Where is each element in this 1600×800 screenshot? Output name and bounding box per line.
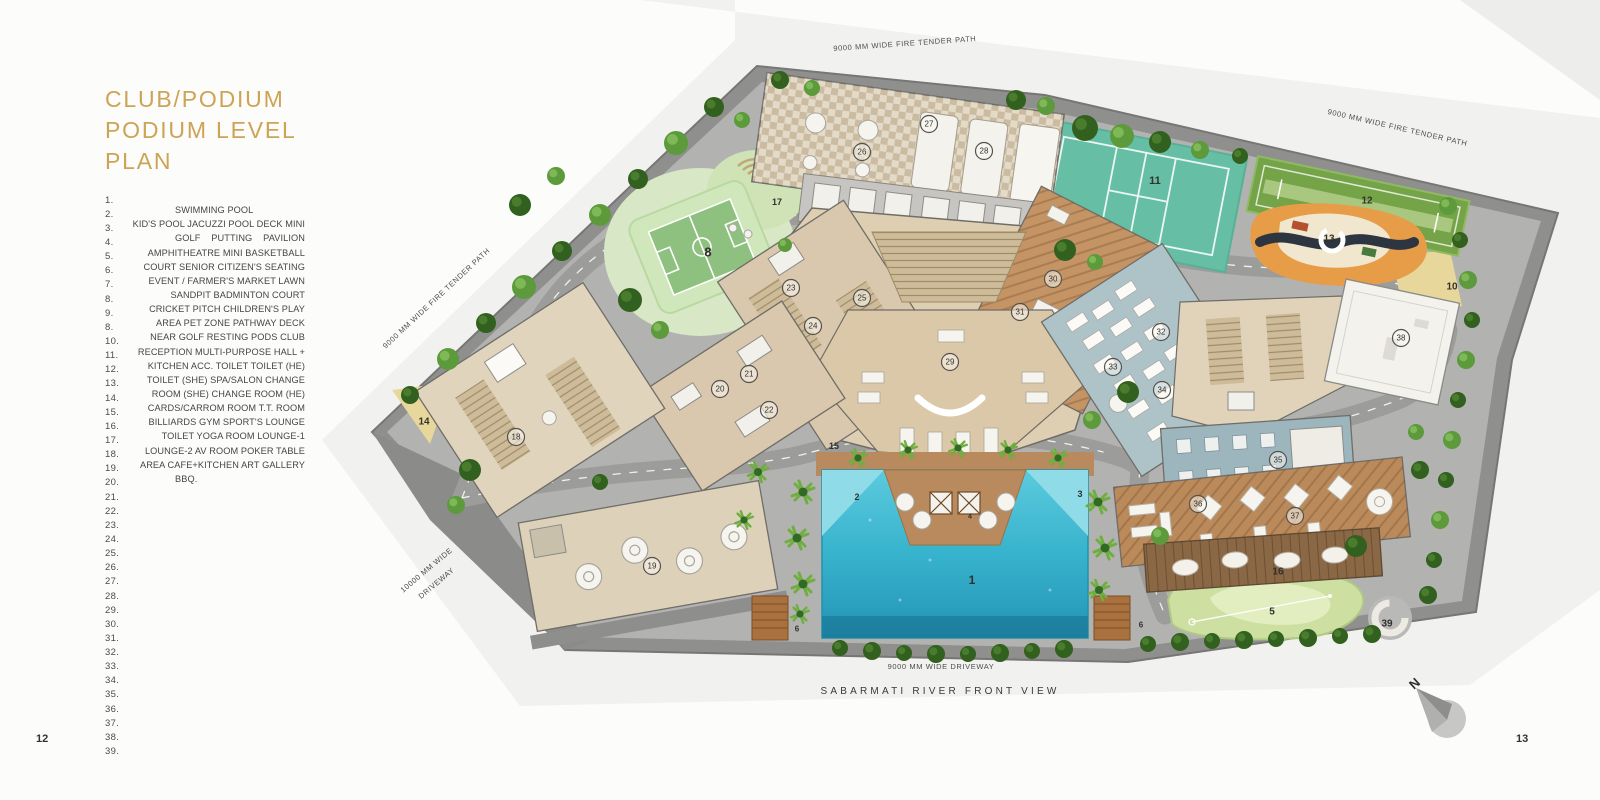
legend-text: AREA CAFE+KITCHEN ART GALLERY bbox=[140, 460, 305, 470]
legend-text: ROOM (SHE) CHANGE ROOM (HE) bbox=[152, 389, 305, 399]
legend-text: NEAR GOLF RESTING PODS CLUB bbox=[150, 332, 305, 342]
legend-number: 6. bbox=[105, 265, 144, 276]
marker-label: 14 bbox=[418, 417, 430, 428]
legend-number: 19. bbox=[105, 463, 140, 474]
legend-number: 16. bbox=[105, 421, 148, 432]
plan-marker-29: 29 bbox=[942, 354, 959, 371]
marker-label: 1 bbox=[969, 573, 976, 587]
plan-marker-20: 20 bbox=[712, 381, 729, 398]
plan-marker-17: 17 bbox=[772, 197, 782, 207]
legend-row: 30. bbox=[105, 617, 305, 631]
plan-marker-15: 15 bbox=[829, 441, 839, 451]
plan-marker-1: 1 bbox=[969, 573, 976, 587]
legend-number: 20. bbox=[105, 477, 175, 488]
plan-marker-32: 32 bbox=[1153, 324, 1170, 341]
plan-marker-2: 2 bbox=[854, 492, 859, 502]
marker-label: 29 bbox=[946, 358, 955, 367]
plan-marker-35: 35 bbox=[1270, 452, 1287, 469]
marker-label: 20 bbox=[716, 385, 725, 394]
legend: 1.2.SWIMMING POOL3.KID'S POOL JACUZZI PO… bbox=[105, 193, 305, 759]
plan-marker-12: 12 bbox=[1361, 196, 1373, 207]
marker-label: 12 bbox=[1361, 196, 1373, 207]
legend-number: 28. bbox=[105, 591, 175, 602]
plan-marker-14: 14 bbox=[418, 417, 430, 428]
legend-row: 39. bbox=[105, 744, 305, 758]
legend-text: AMPHITHEATRE MINI BASKETBALL bbox=[148, 248, 305, 258]
marker-label: 17 bbox=[772, 197, 782, 207]
marker-label: 13 bbox=[1323, 234, 1335, 245]
legend-row: 25. bbox=[105, 547, 305, 561]
brochure-page: N 9000 MM WIDE FIRE TENDER PATH 9000 MM … bbox=[0, 0, 1600, 800]
legend-text: CARDS/CARROM ROOM T.T. ROOM bbox=[148, 403, 305, 413]
pool-bridge-6-left bbox=[752, 596, 788, 640]
plan-marker-30: 30 bbox=[1045, 271, 1062, 288]
legend-number: 30. bbox=[105, 619, 175, 630]
legend-row: 26. bbox=[105, 561, 305, 575]
legend-text: KITCHEN ACC. TOILET TOILET (HE) bbox=[148, 361, 305, 371]
legend-number: 4. bbox=[105, 237, 175, 248]
page-title: CLUB/PODIUM PODIUM LEVEL PLAN bbox=[105, 84, 305, 177]
legend-number: 2. bbox=[105, 209, 175, 220]
marker-label: 8 bbox=[704, 245, 711, 260]
marker-label: 6 bbox=[795, 625, 800, 634]
marker-label: 26 bbox=[858, 148, 867, 157]
legend-text: BBQ. bbox=[175, 474, 305, 484]
legend-text: CRICKET PITCH CHILDREN'S PLAY bbox=[149, 304, 305, 314]
legend-row: 33. bbox=[105, 660, 305, 674]
marker-label: 39 bbox=[1381, 619, 1393, 630]
marker-label: 5 bbox=[1269, 607, 1275, 618]
marker-label: 19 bbox=[648, 562, 657, 571]
left-column: CLUB/PODIUM PODIUM LEVEL PLAN 1.2.SWIMMI… bbox=[105, 84, 305, 759]
legend-number: 23. bbox=[105, 520, 175, 531]
legend-number: 13. bbox=[105, 378, 147, 389]
plan-marker-38: 38 bbox=[1393, 330, 1410, 347]
legend-row: 31. bbox=[105, 631, 305, 645]
plan-marker-8: 8 bbox=[704, 245, 711, 260]
legend-text: AREA PET ZONE PATHWAY DECK bbox=[156, 318, 305, 328]
plan-marker-21: 21 bbox=[741, 366, 758, 383]
legend-row: 27. bbox=[105, 575, 305, 589]
legend-row: 37. bbox=[105, 716, 305, 730]
title-line-1: CLUB/PODIUM bbox=[105, 84, 305, 115]
legend-number: 33. bbox=[105, 661, 175, 672]
pool-bridge-6-right bbox=[1094, 596, 1130, 640]
marker-label: 6 bbox=[1139, 621, 1144, 630]
marker-label: 23 bbox=[787, 284, 796, 293]
legend-text: BILLIARDS GYM SPORT'S LOUNGE bbox=[148, 417, 305, 427]
legend-text: RECEPTION MULTI-PURPOSE HALL + bbox=[138, 347, 305, 357]
legend-number: 3. bbox=[105, 223, 133, 234]
page-number-right: 13 bbox=[1516, 733, 1528, 745]
legend-number: 5. bbox=[105, 251, 148, 262]
legend-number: 18. bbox=[105, 449, 145, 460]
legend-number: 8. bbox=[105, 322, 156, 333]
legend-number: 11. bbox=[105, 350, 138, 361]
plan-marker-6: 6 bbox=[795, 625, 800, 634]
legend-row: 24. bbox=[105, 532, 305, 546]
plan-marker-4: 4 bbox=[968, 514, 972, 521]
legend-text: GOLF PUTTING PAVILION bbox=[175, 233, 305, 243]
legend-number: 25. bbox=[105, 548, 175, 559]
marker-label: 25 bbox=[858, 294, 867, 303]
plan-marker-26: 26 bbox=[854, 144, 871, 161]
legend-row: 34. bbox=[105, 674, 305, 688]
plan-marker-34: 34 bbox=[1154, 382, 1171, 399]
plan-marker-25: 25 bbox=[854, 290, 871, 307]
legend-number: 24. bbox=[105, 534, 175, 545]
legend-number: 15. bbox=[105, 407, 148, 418]
title-line-2: PODIUM LEVEL PLAN bbox=[105, 115, 305, 177]
plan-marker-16: 16 bbox=[1272, 567, 1284, 578]
marker-label: 34 bbox=[1158, 386, 1167, 395]
legend-text: KID'S POOL JACUZZI POOL DECK MINI bbox=[133, 219, 305, 229]
marker-label: 33 bbox=[1109, 363, 1118, 372]
plan-marker-28: 28 bbox=[976, 143, 993, 160]
legend-row: 28. bbox=[105, 589, 305, 603]
legend-number: 34. bbox=[105, 675, 175, 686]
marker-label: 10 bbox=[1446, 282, 1458, 293]
legend-text: LOUNGE-2 AV ROOM POKER TABLE bbox=[145, 446, 305, 456]
marker-label: 24 bbox=[809, 322, 818, 331]
marker-label: 28 bbox=[980, 147, 989, 156]
plan-marker-13: 13 bbox=[1323, 234, 1335, 245]
legend-number: 37. bbox=[105, 718, 175, 729]
legend-row: 29. bbox=[105, 603, 305, 617]
plan-marker-5: 5 bbox=[1269, 607, 1275, 618]
marker-label: 4 bbox=[968, 514, 972, 521]
plan-marker-27: 27 bbox=[921, 116, 938, 133]
plan-marker-11: 11 bbox=[1149, 175, 1161, 187]
legend-number: 10. bbox=[105, 336, 150, 347]
legend-row: 36. bbox=[105, 702, 305, 716]
legend-number: 1. bbox=[105, 195, 175, 206]
driveway-bottom-label: 9000 MM WIDE DRIVEWAY bbox=[888, 662, 995, 671]
legend-number: 36. bbox=[105, 704, 175, 715]
legend-text: SWIMMING POOL bbox=[175, 205, 305, 215]
legend-text: EVENT / FARMER'S MARKET LAWN bbox=[148, 276, 305, 286]
legend-number: 39. bbox=[105, 746, 175, 757]
legend-number: 12. bbox=[105, 364, 148, 375]
legend-row: 22. bbox=[105, 504, 305, 518]
plan-marker-10: 10 bbox=[1446, 282, 1458, 293]
plan-marker-18: 18 bbox=[508, 429, 525, 446]
legend-number: 7. bbox=[105, 279, 148, 290]
legend-text: COURT SENIOR CITIZEN'S SEATING bbox=[144, 262, 305, 272]
plan-marker-22: 22 bbox=[761, 402, 778, 419]
plan-marker-33: 33 bbox=[1105, 359, 1122, 376]
legend-number: 17. bbox=[105, 435, 162, 446]
plan-marker-24: 24 bbox=[805, 318, 822, 335]
legend-row: 38. bbox=[105, 730, 305, 744]
marker-label: 2 bbox=[854, 492, 859, 502]
marker-label: 30 bbox=[1049, 275, 1058, 284]
legend-number: 21. bbox=[105, 492, 175, 503]
marker-label: 35 bbox=[1274, 456, 1283, 465]
legend-number: 22. bbox=[105, 506, 175, 517]
marker-label: 15 bbox=[829, 441, 839, 451]
marker-label: 31 bbox=[1016, 308, 1025, 317]
plan-marker-31: 31 bbox=[1012, 304, 1029, 321]
marker-label: 18 bbox=[512, 433, 521, 442]
plan-marker-19: 19 bbox=[644, 558, 661, 575]
legend-number: 9. bbox=[105, 308, 149, 319]
legend-row: 32. bbox=[105, 646, 305, 660]
legend-text: TOILET YOGA ROOM LOUNGE-1 bbox=[162, 431, 305, 441]
river-label: SABARMATI RIVER FRONT VIEW bbox=[821, 686, 1060, 697]
marker-label: 16 bbox=[1272, 567, 1284, 578]
legend-number: 38. bbox=[105, 732, 175, 743]
marker-label: 36 bbox=[1194, 500, 1203, 509]
legend-row: 35. bbox=[105, 688, 305, 702]
legend-number: 14. bbox=[105, 393, 152, 404]
marker-label: 32 bbox=[1157, 328, 1166, 337]
marker-label: 27 bbox=[925, 120, 934, 129]
legend-row: 23. bbox=[105, 518, 305, 532]
plan-marker-3: 3 bbox=[1077, 489, 1082, 499]
legend-row: 20.BBQ. bbox=[105, 476, 305, 490]
legend-number: 26. bbox=[105, 562, 175, 573]
page-number-left: 12 bbox=[36, 733, 48, 745]
legend-number: 29. bbox=[105, 605, 175, 616]
legend-number: 32. bbox=[105, 647, 175, 658]
legend-number: 31. bbox=[105, 633, 175, 644]
plan-marker-6: 6 bbox=[1139, 621, 1144, 630]
plan-marker-39: 39 bbox=[1381, 619, 1393, 630]
legend-number: 35. bbox=[105, 689, 175, 700]
marker-label: 38 bbox=[1397, 334, 1406, 343]
marker-label: 11 bbox=[1149, 175, 1161, 187]
legend-number: 8. bbox=[105, 294, 170, 305]
legend-text: TOILET (SHE) SPA/SALON CHANGE bbox=[147, 375, 305, 385]
marker-label: 21 bbox=[745, 370, 754, 379]
plan-marker-36: 36 bbox=[1190, 496, 1207, 513]
legend-text: SANDPIT BADMINTON COURT bbox=[170, 290, 305, 300]
legend-number: 27. bbox=[105, 576, 175, 587]
plan-marker-23: 23 bbox=[783, 280, 800, 297]
marker-label: 3 bbox=[1077, 489, 1082, 499]
plan-marker-37: 37 bbox=[1287, 508, 1304, 525]
marker-label: 22 bbox=[765, 406, 774, 415]
marker-label: 37 bbox=[1291, 512, 1300, 521]
legend-row: 21. bbox=[105, 490, 305, 504]
